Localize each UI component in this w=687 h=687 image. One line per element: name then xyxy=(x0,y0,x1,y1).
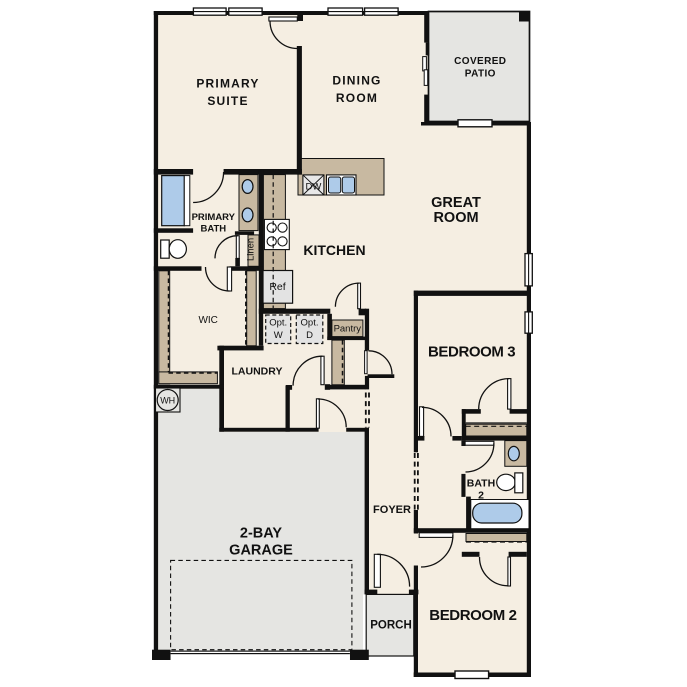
svg-text:WH: WH xyxy=(160,395,175,405)
svg-text:PORCH: PORCH xyxy=(370,619,412,631)
svg-text:2-BAY: 2-BAY xyxy=(240,526,283,542)
svg-text:W: W xyxy=(274,330,283,341)
svg-text:Linen: Linen xyxy=(245,238,256,261)
svg-text:BATH: BATH xyxy=(467,478,495,490)
svg-text:ROOM: ROOM xyxy=(336,91,378,105)
svg-text:KITCHEN: KITCHEN xyxy=(303,242,365,258)
svg-text:LAUNDRY: LAUNDRY xyxy=(232,365,283,377)
svg-text:COVERED: COVERED xyxy=(454,56,506,67)
svg-text:PRIMARY: PRIMARY xyxy=(192,212,236,223)
svg-text:GARAGE: GARAGE xyxy=(229,543,293,559)
svg-text:DW: DW xyxy=(305,182,321,193)
svg-text:D: D xyxy=(306,330,313,341)
svg-text:BEDROOM 2: BEDROOM 2 xyxy=(429,607,516,624)
svg-text:Ref: Ref xyxy=(269,281,285,293)
svg-text:Pantry: Pantry xyxy=(334,324,362,335)
svg-text:2: 2 xyxy=(478,490,484,502)
svg-text:DINING: DINING xyxy=(332,73,381,87)
svg-text:Opt.: Opt. xyxy=(301,318,319,329)
svg-text:GREAT: GREAT xyxy=(431,195,481,211)
svg-text:SUITE: SUITE xyxy=(207,94,248,108)
svg-text:ROOM: ROOM xyxy=(433,210,478,226)
svg-text:BATH: BATH xyxy=(200,224,226,235)
svg-text:BEDROOM 3: BEDROOM 3 xyxy=(428,344,515,361)
svg-text:WIC: WIC xyxy=(198,315,217,326)
svg-text:PRIMARY: PRIMARY xyxy=(196,76,259,90)
svg-text:PATIO: PATIO xyxy=(465,68,496,79)
svg-text:Opt.: Opt. xyxy=(269,318,287,329)
svg-text:FOYER: FOYER xyxy=(373,504,411,516)
